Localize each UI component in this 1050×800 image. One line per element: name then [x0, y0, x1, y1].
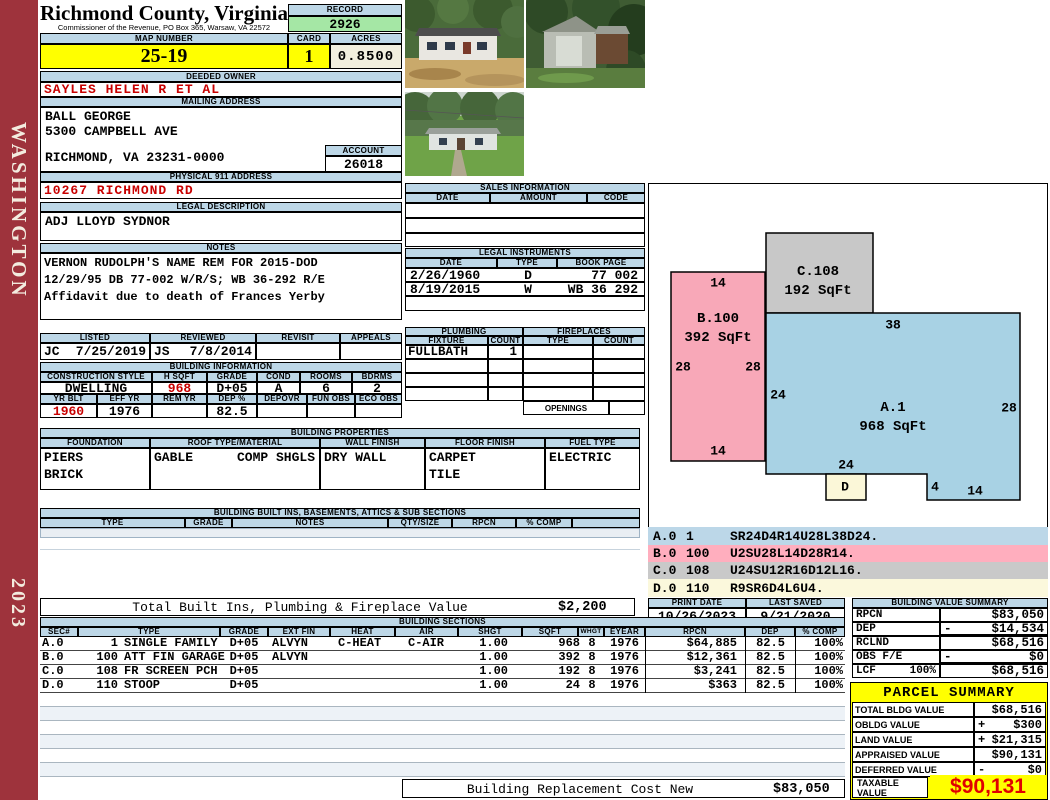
legal-row-2: 8/19/2015 W WB 36 292	[405, 282, 645, 296]
bs-c-grade: D+05	[220, 665, 268, 678]
plumbing-row-2	[405, 359, 488, 373]
sales-col-date: DATE	[405, 193, 490, 203]
grade-value: D+05	[207, 382, 257, 394]
sketch-dim-b-right: 28	[745, 360, 761, 375]
sketch-svg	[648, 0, 1048, 525]
bs-col-comp: % COMP	[795, 627, 845, 637]
bs-c-whgt: 8	[580, 665, 604, 678]
bs-b-sec: B.0	[42, 651, 78, 664]
cond-value: A	[257, 382, 300, 394]
sketch-section-d-name: D	[841, 480, 849, 495]
bs-col-air: AIR	[395, 627, 458, 637]
bs-d-code: 110	[78, 679, 118, 692]
print-date-header: PRINT DATE	[648, 598, 746, 608]
fireplaces-header: FIREPLACES	[523, 327, 645, 336]
bvs-label-dep: DEP	[852, 622, 940, 636]
bvs-obs-sign: -	[944, 650, 952, 664]
remyr-value	[152, 404, 207, 418]
legal-row-2-type: W	[498, 282, 558, 296]
fireplace-count-4	[593, 387, 645, 401]
foundation-header: FOUNDATION	[40, 438, 150, 448]
bs-col-eyear: EYEAR	[604, 627, 645, 637]
sketch-section-a-sqft: 968 SqFt	[859, 419, 926, 435]
bs-col-shgt: SHGT	[458, 627, 522, 637]
account-value: 26018	[325, 156, 402, 172]
sketch-dim-b-top: 14	[710, 276, 726, 291]
built-ins-empty-row	[40, 528, 640, 538]
sketch-section-c-sqft: 192 SqFt	[784, 283, 851, 299]
ps-label-appraised: APPRAISED VALUE	[852, 747, 974, 762]
ps-taxable-line2: VALUE	[857, 788, 887, 798]
fireplace-row-3	[523, 373, 593, 387]
effyr-value: 1976	[97, 404, 152, 418]
section-code-row-b: B.0 100 U2SU28L14D28R14.	[648, 545, 1048, 562]
bvs-rclnd-text: RCLND	[856, 637, 889, 649]
bs-b-extfin: ALVYN	[272, 651, 330, 664]
sketch-dim-b-bottom: 14	[710, 444, 726, 459]
notes-header: NOTES	[40, 243, 402, 253]
bvs-rpcn-value: $83,050	[991, 608, 1044, 622]
legal-row-2-bookpage: WB 36 292	[568, 282, 638, 296]
photo-shed[interactable]	[526, 0, 645, 88]
rooms-value: 6	[300, 382, 352, 394]
built-ins-col-qty: QTY/SIZE	[388, 518, 452, 528]
legal-col-bookpage: BOOK PAGE	[557, 258, 645, 268]
bdrms-header: BDRMS	[352, 372, 402, 382]
last-saved-header: LAST SAVED	[746, 598, 845, 608]
legal-description-header: LEGAL DESCRIPTION	[40, 202, 402, 212]
bs-col-dep: DEP	[745, 627, 795, 637]
plumbing-count-3	[488, 373, 523, 387]
hsqft-value: 968	[152, 382, 207, 394]
bs-a-sec: A.0	[42, 637, 78, 650]
roof-type-value: GABLE	[154, 450, 193, 465]
legal-col-type: TYPE	[497, 258, 557, 268]
reviewed-header: REVIEWED	[150, 333, 256, 343]
ps-value-total-bldg: $68,516	[974, 702, 1046, 717]
bs-c-code: 108	[78, 665, 118, 678]
built-ins-header: BUILDING BUILT INS, BASEMENTS, ATTICS & …	[40, 508, 640, 518]
map-number-value: 25-19	[40, 44, 288, 69]
building-information-header: BUILDING INFORMATION	[40, 362, 402, 372]
foundation-line-1: PIERS	[44, 450, 83, 465]
section-code-d-code: 110	[686, 581, 709, 596]
sales-row-3	[405, 233, 645, 247]
account-header: ACCOUNT	[325, 145, 402, 156]
section-code-d-path: R9SR6D4L6U4.	[730, 581, 824, 596]
plumbing-fixture-1: FULLBATH	[405, 345, 488, 359]
page-subtitle: Commissioner of the Revenue, PO Box 365,…	[40, 23, 288, 32]
built-ins-empty-row-2	[40, 538, 640, 550]
deeded-owner-header: DEEDED OWNER	[40, 71, 402, 82]
sketch-dim-a-bottom-right: 14	[967, 484, 983, 499]
plumbing-row-4	[405, 387, 488, 401]
bs-empty-row	[40, 735, 845, 749]
listed-date: 7/25/2019	[76, 344, 146, 359]
bvs-label-obs: OBS F/E	[852, 650, 940, 664]
sales-col-amount: AMOUNT	[490, 193, 587, 203]
listed-by: JC	[44, 344, 60, 359]
building-sections-header: BUILDING SECTIONS	[40, 617, 845, 627]
bs-c-dep: 82.5	[745, 665, 795, 679]
remyr-header: REM YR	[152, 394, 207, 404]
legal-description-value: ADJ LLOYD SYDNOR	[45, 214, 170, 229]
reviewed-date: 7/8/2014	[190, 344, 252, 359]
construction-style-header: CONSTRUCTION STYLE	[40, 372, 152, 382]
fireplace-count-header: COUNT	[593, 336, 645, 345]
legal-row-2-date: 8/19/2015	[410, 282, 480, 296]
bs-b-shgt: 1.00	[458, 651, 508, 664]
bs-col-whgt: WHGT	[578, 627, 604, 637]
mailing-address-header: MAILING ADDRESS	[40, 97, 402, 107]
depovr-header: DEPOVR	[257, 394, 307, 404]
yrblt-header: YR BLT	[40, 394, 97, 404]
bs-a-grade: D+05	[220, 637, 268, 650]
bs-a-comp: 100%	[795, 637, 843, 651]
ps-value-obldg: +$300	[974, 717, 1046, 732]
built-ins-col-grade: GRADE	[185, 518, 232, 528]
dep-header: DEP %	[207, 394, 257, 404]
wall-finish-value: DRY WALL	[324, 450, 386, 465]
bs-empty-row	[40, 763, 845, 777]
property-record-card: WASHINGTON 2023 Richmond County, Virgini…	[0, 0, 1050, 800]
ps-value-land: +$21,315	[974, 732, 1046, 747]
bs-d-comp: 100%	[795, 679, 843, 693]
replacement-cost-value: $83,050	[773, 782, 830, 797]
acres-header: ACRES	[330, 33, 402, 44]
section-code-a-sec: A.0	[653, 529, 676, 544]
building-section-row-d: D.0 110 STOOP D+05 1.00 24 8 1976 $363 8…	[40, 679, 845, 693]
construction-style-value: DWELLING	[40, 382, 152, 394]
plumbing-count-1: 1	[488, 345, 523, 359]
sketch-dim-a-left: 24	[770, 388, 786, 403]
ps-taxable-value: $90,131	[930, 775, 1046, 798]
section-code-c-path: U24SU12R16D12L16.	[730, 563, 863, 578]
fireplace-row-1	[523, 345, 593, 359]
ps-obldg-value: $300	[1013, 718, 1042, 732]
openings-value	[609, 401, 645, 415]
mailing-line-3: RICHMOND, VA 23231-0000	[45, 150, 224, 165]
sales-col-code: CODE	[587, 193, 645, 203]
bs-col-sqft: SQFT	[522, 627, 578, 637]
bs-a-code: 1	[78, 637, 118, 650]
fixture-header: FIXTURE	[405, 336, 488, 345]
bs-c-eyear: 1976	[604, 665, 645, 678]
year-label: 2023	[6, 578, 29, 630]
bs-a-shgt: 1.00	[458, 637, 508, 650]
parcel-summary-header: PARCEL SUMMARY	[850, 685, 1048, 701]
depovr-value	[257, 404, 307, 418]
bs-col-extfin: EXT FIN	[268, 627, 330, 637]
photo-house-front[interactable]	[405, 0, 524, 88]
bs-empty-row	[40, 721, 845, 735]
bvs-value-dep: -$14,534	[940, 622, 1048, 636]
sales-row-2	[405, 218, 645, 233]
built-ins-col-comp: % COMP	[516, 518, 572, 528]
built-ins-col-type: TYPE	[40, 518, 185, 528]
section-code-row-a: A.0 1 SR24D4R14U28L38D24.	[648, 527, 1048, 545]
section-code-c-code: 108	[686, 563, 709, 578]
bs-col-sec: SEC#	[40, 627, 78, 637]
bs-d-whgt: 8	[580, 679, 604, 692]
openings-header: OPENINGS	[523, 401, 609, 415]
ps-land-value: $21,315	[992, 733, 1042, 747]
building-value-summary-header: BUILDING VALUE SUMMARY	[852, 598, 1048, 608]
revisit-header: REVISIT	[256, 333, 340, 343]
ps-obldg-sign: +	[978, 718, 985, 732]
bvs-value-rpcn: $83,050	[940, 608, 1048, 622]
record-header: RECORD	[288, 4, 402, 16]
bvs-value-obs: -$0	[940, 650, 1048, 664]
ps-value-appraised: $90,131	[974, 747, 1046, 762]
bs-d-rpcn: $363	[645, 679, 737, 693]
bs-b-eyear: 1976	[604, 651, 645, 664]
ps-label-obldg: OBLDG VALUE	[852, 717, 974, 732]
bvs-value-lcf: $68,516	[940, 664, 1048, 678]
fireplace-count-2	[593, 359, 645, 373]
bs-c-rpcn: $3,241	[645, 665, 737, 679]
map-number-header: MAP NUMBER	[40, 33, 288, 44]
bvs-lcf-text: LCF	[856, 665, 876, 677]
funobs-header: FUN OBS	[307, 394, 355, 404]
bs-a-dep: 82.5	[745, 637, 795, 651]
district-label: WASHINGTON	[6, 122, 31, 299]
mailing-line-2: 5300 CAMPBELL AVE	[45, 124, 178, 139]
section-code-a-path: SR24D4R14U28L38D24.	[730, 529, 878, 544]
bs-empty-row	[40, 707, 845, 721]
section-code-c-sec: C.0	[653, 563, 676, 578]
legal-row-1-type: D	[498, 268, 558, 282]
fireplace-row-4	[523, 387, 593, 401]
bs-b-grade: D+05	[220, 651, 268, 664]
rooms-header: ROOMS	[300, 372, 352, 382]
bvs-dep-value: $14,534	[991, 622, 1044, 636]
listed-header: LISTED	[40, 333, 150, 343]
built-ins-total-label: Total Built Ins, Plumbing & Fireplace Va…	[100, 600, 500, 615]
roof-material-value: COMP SHGLS	[237, 450, 315, 465]
replacement-cost-label: Building Replacement Cost New	[420, 782, 740, 797]
section-code-b-code: 100	[686, 546, 709, 561]
bs-d-sqft: 24	[522, 679, 580, 692]
bs-col-type: TYPE	[78, 627, 220, 637]
yrblt-value: 1960	[40, 404, 97, 418]
bs-c-sqft: 192	[522, 665, 580, 678]
record-value: 2926	[288, 16, 402, 32]
bvs-obs-value: $0	[1029, 650, 1044, 664]
bs-c-sec: C.0	[42, 665, 78, 678]
fireplace-row-2	[523, 359, 593, 373]
bvs-label-rpcn: RPCN	[852, 608, 940, 622]
wall-finish-header: WALL FINISH	[320, 438, 425, 448]
bs-empty-row	[40, 749, 845, 763]
roof-header: ROOF TYPE/MATERIAL	[150, 438, 320, 448]
sales-row-1	[405, 203, 645, 218]
built-ins-col-notes: NOTES	[232, 518, 388, 528]
bs-c-shgt: 1.00	[458, 665, 508, 678]
fuel-type-value: ELECTRIC	[549, 450, 611, 465]
floor-finish-line-2: TILE	[429, 467, 460, 482]
section-code-b-path: U2SU28L14D28R14.	[730, 546, 855, 561]
listed-value: JC7/25/2019	[40, 343, 150, 360]
building-properties-header: BUILDING PROPERTIES	[40, 428, 640, 438]
bs-col-rpcn: RPCN	[645, 627, 745, 637]
fireplace-count-3	[593, 373, 645, 387]
page-title: Richmond County, Virginia	[40, 1, 288, 24]
legal-row-1-bookpage: 77 002	[591, 268, 638, 282]
building-section-row-c: C.0 108 FR SCREEN PCH D+05 1.00 192 8 19…	[40, 665, 845, 679]
bvs-rclnd-value: $68,516	[991, 636, 1044, 650]
revisit-value	[256, 343, 340, 360]
section-code-a-code: 1	[686, 529, 694, 544]
built-ins-col-blank	[572, 518, 640, 528]
bvs-lcf-value: $68,516	[991, 664, 1044, 678]
bs-d-sec: D.0	[42, 679, 78, 692]
hsqft-header: H SQFT	[152, 372, 207, 382]
sketch-section-b-sqft: 392 SqFt	[684, 330, 751, 346]
ps-land-sign: +	[978, 733, 985, 747]
grade-header: GRADE	[207, 372, 257, 382]
fireplace-count-1	[593, 345, 645, 359]
bs-b-rpcn: $12,361	[645, 651, 737, 665]
sketch-dim-a-right: 28	[1001, 401, 1017, 416]
appeals-value	[340, 343, 402, 360]
bs-a-whgt: 8	[580, 637, 604, 650]
sketch-section-a-name: A.1	[880, 400, 905, 416]
legal-col-date: DATE	[405, 258, 497, 268]
bvs-obs-text: OBS F/E	[856, 651, 902, 663]
bs-a-extfin: ALVYN	[272, 637, 330, 650]
bs-b-sqft: 392	[522, 651, 580, 664]
bs-a-sqft: 968	[522, 637, 580, 650]
bs-a-heat: C-HEAT	[338, 637, 400, 650]
bvs-dep-text: DEP	[856, 623, 876, 635]
floor-finish-line-1: CARPET	[429, 450, 476, 465]
section-code-row-c: C.0 108 U24SU12R16D12L16.	[648, 562, 1048, 579]
sketch-dim-b-left: 28	[675, 360, 691, 375]
funobs-value	[307, 404, 355, 418]
bvs-label-rclnd: RCLND	[852, 636, 940, 650]
sketch-section-b-name: B.100	[697, 311, 739, 327]
legal-instruments-header: LEGAL INSTRUMENTS	[405, 248, 645, 258]
dep-value: 82.5	[207, 404, 257, 418]
ps-appraised-value: $90,131	[992, 748, 1042, 762]
reviewed-by: JS	[154, 344, 170, 359]
notes-line-2: 12/29/95 DB 77-002 W/R/S; WB 36-292 R/E	[44, 273, 325, 287]
photo-house-yard[interactable]	[405, 92, 524, 176]
bs-d-dep: 82.5	[745, 679, 795, 693]
bs-a-rpcn: $64,885	[645, 637, 737, 651]
legal-row-3	[405, 296, 645, 311]
ps-taxable-line1: TAXABLE	[857, 778, 899, 788]
section-code-d-sec: D.0	[653, 581, 676, 596]
ps-label-total-bldg: TOTAL BLDG VALUE	[852, 702, 974, 717]
sidebar: WASHINGTON 2023	[0, 0, 38, 800]
sketch-dim-a-bottom: 24	[838, 458, 854, 473]
effyr-header: EFF YR	[97, 394, 152, 404]
legal-row-1-date: 2/26/1960	[410, 268, 480, 282]
ps-label-taxable: TAXABLE VALUE	[852, 777, 928, 798]
bs-b-comp: 100%	[795, 651, 843, 665]
bvs-rpcn-text: RPCN	[856, 609, 882, 621]
physical-address-value: 10267 RICHMOND RD	[40, 182, 402, 199]
notes-line-3: Affidavit due to death of Frances Yerby	[44, 290, 325, 304]
fireplace-type-header: TYPE	[523, 336, 593, 345]
ecoobs-value	[355, 404, 402, 418]
appeals-header: APPEALS	[340, 333, 402, 343]
bdrms-value: 2	[352, 382, 402, 394]
bvs-lcf-pct: 100%	[910, 665, 936, 677]
bvs-dep-sign: -	[944, 622, 952, 636]
plumbing-count-2	[488, 359, 523, 373]
notes-line-1: VERNON RUDOLPH'S NAME REM FOR 2015-DOD	[44, 256, 318, 270]
plumbing-count-4	[488, 387, 523, 401]
legal-row-1: 2/26/1960 D 77 002	[405, 268, 645, 282]
sales-information-header: SALES INFORMATION	[405, 183, 645, 193]
bvs-value-rclnd: $68,516	[940, 636, 1048, 650]
acres-value: 0.8500	[330, 44, 402, 69]
sketch-dim-a-step: 4	[931, 480, 939, 495]
bs-col-heat: HEAT	[330, 627, 395, 637]
card-header: CARD	[288, 33, 330, 44]
bs-d-grade: D+05	[220, 679, 268, 692]
floor-finish-header: FLOOR FINISH	[425, 438, 545, 448]
building-section-row-a: A.0 1 SINGLE FAMILY D+05 ALVYN C-HEAT C-…	[40, 637, 845, 651]
ps-label-land: LAND VALUE	[852, 732, 974, 747]
bs-c-comp: 100%	[795, 665, 843, 679]
foundation-line-2: BRICK	[44, 467, 83, 482]
card-value: 1	[288, 44, 330, 69]
bs-a-eyear: 1976	[604, 637, 645, 650]
ps-total-bldg-value: $68,516	[992, 703, 1042, 717]
fixture-count-header: COUNT	[488, 336, 523, 345]
bs-empty-row	[40, 693, 845, 707]
deeded-owner-value: SAYLES HELEN R ET AL	[40, 82, 402, 97]
bs-d-eyear: 1976	[604, 679, 645, 692]
cond-header: COND	[257, 372, 300, 382]
mailing-line-1: BALL GEORGE	[45, 109, 131, 124]
bs-d-shgt: 1.00	[458, 679, 508, 692]
ecoobs-header: ECO OBS	[355, 394, 402, 404]
building-section-row-b: B.0 100 ATT FIN GARAGE D+05 ALVYN 1.00 3…	[40, 651, 845, 665]
plumbing-header: PLUMBING	[405, 327, 523, 336]
fuel-type-header: FUEL TYPE	[545, 438, 640, 448]
plumbing-row-3	[405, 373, 488, 387]
bs-b-dep: 82.5	[745, 651, 795, 665]
sketch-dim-a-top: 38	[885, 318, 901, 333]
sketch-section-c-name: C.108	[797, 264, 839, 280]
built-ins-total-value: $2,200	[558, 600, 607, 615]
section-code-b-sec: B.0	[653, 546, 676, 561]
physical-address-header: PHYSICAL 911 ADDRESS	[40, 172, 402, 182]
bvs-label-lcf: LCF100%	[852, 664, 940, 678]
section-code-row-d: D.0 110 R9SR6D4L6U4.	[648, 579, 1048, 597]
bs-col-grade: GRADE	[220, 627, 268, 637]
built-ins-col-rpcn: RPCN	[452, 518, 516, 528]
bs-b-whgt: 8	[580, 651, 604, 664]
bs-b-code: 100	[78, 651, 118, 664]
reviewed-value: JS7/8/2014	[150, 343, 256, 360]
